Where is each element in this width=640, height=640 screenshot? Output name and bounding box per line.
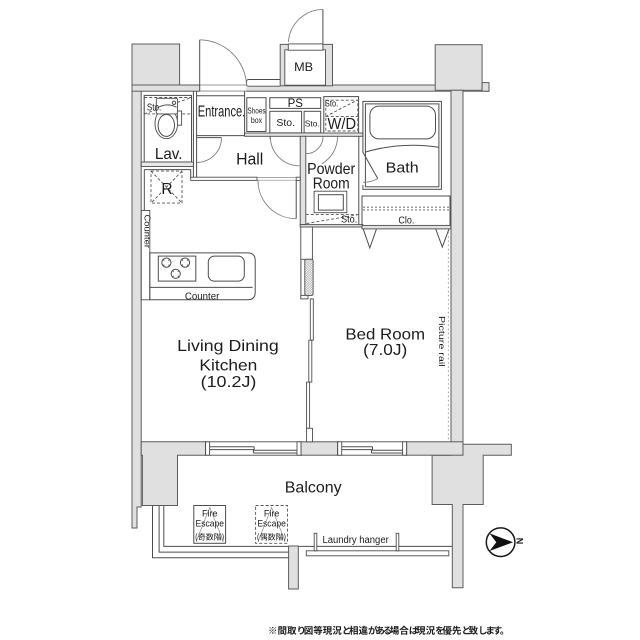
- svg-text:Bath: Bath: [386, 160, 419, 177]
- svg-text:Kitchen: Kitchen: [199, 358, 257, 375]
- svg-text:Counter: Counter: [143, 215, 152, 249]
- svg-text:Fire: Fire: [264, 508, 280, 518]
- svg-text:Bed Room: Bed Room: [345, 327, 425, 344]
- svg-text:N: N: [515, 538, 525, 545]
- svg-text:Counter: Counter: [185, 290, 220, 302]
- svg-text:MB: MB: [294, 60, 313, 74]
- svg-text:Escape: Escape: [257, 518, 286, 528]
- svg-text:(10.2J): (10.2J): [201, 374, 257, 391]
- svg-text:Picture rail: Picture rail: [437, 316, 447, 367]
- svg-text:Sto.: Sto.: [325, 98, 339, 108]
- svg-text:Living Dining: Living Dining: [177, 338, 279, 355]
- svg-text:Laundry hanger: Laundry hanger: [322, 535, 389, 546]
- svg-text:Sto.: Sto.: [305, 118, 320, 128]
- svg-text:Escape: Escape: [196, 518, 225, 528]
- svg-text:Hall: Hall: [236, 151, 263, 169]
- svg-text:Entrance.: Entrance.: [198, 104, 246, 121]
- svg-text:(7.0J): (7.0J): [363, 342, 407, 359]
- svg-text:W/D: W/D: [328, 116, 357, 133]
- svg-text:Lav.: Lav.: [155, 146, 183, 163]
- svg-text:PS: PS: [288, 98, 304, 110]
- svg-text:box: box: [251, 116, 262, 125]
- svg-text:Sto.: Sto.: [341, 214, 357, 225]
- svg-text:Fire: Fire: [202, 508, 218, 518]
- svg-text:Clo.: Clo.: [398, 215, 414, 227]
- svg-text:Sto.: Sto.: [147, 102, 161, 113]
- svg-text:Sto.: Sto.: [276, 118, 295, 129]
- svg-text:Shoes: Shoes: [247, 107, 265, 116]
- svg-text:Room: Room: [313, 176, 350, 193]
- svg-text:R: R: [161, 181, 172, 198]
- svg-text:Balcony: Balcony: [285, 480, 342, 497]
